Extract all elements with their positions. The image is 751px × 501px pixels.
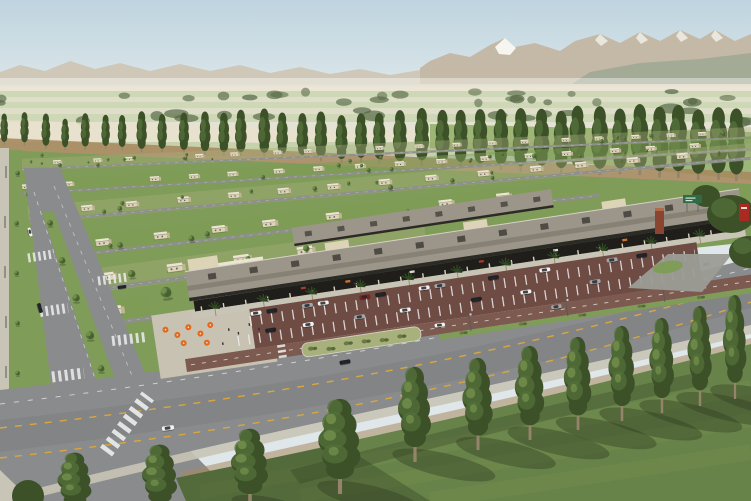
highway-sign: [683, 195, 702, 203]
entry-monument: [655, 208, 664, 234]
red-sign: [739, 204, 749, 221]
access-crosswalk: [281, 345, 283, 359]
monument-top: [655, 208, 664, 211]
aerial-render: [0, 0, 751, 501]
render-canvas: [0, 0, 751, 501]
